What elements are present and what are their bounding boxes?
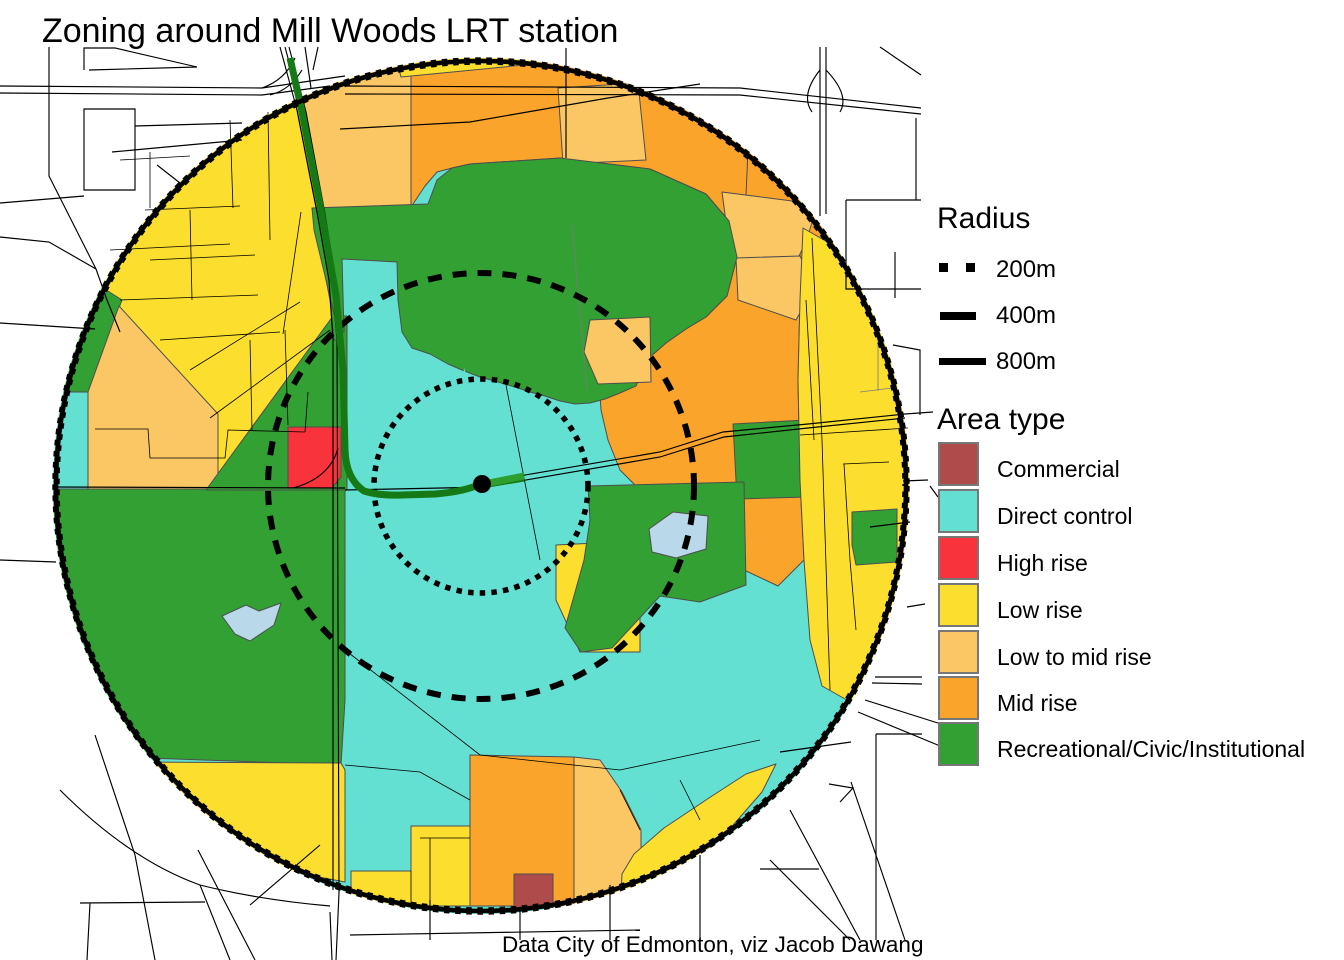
svg-text:Area type: Area type [937,403,1065,436]
svg-text:Low rise: Low rise [997,597,1083,623]
svg-text:Low to mid rise: Low to mid rise [997,644,1152,670]
svg-text:200m: 200m [996,256,1056,283]
svg-text:Mid rise: Mid rise [997,690,1078,716]
svg-text:High rise: High rise [997,550,1088,576]
svg-text:800m: 800m [996,348,1056,375]
svg-text:400m: 400m [996,302,1056,329]
svg-text:Commercial: Commercial [997,456,1120,482]
svg-text:Radius: Radius [937,202,1030,235]
svg-text:Direct control: Direct control [997,503,1132,529]
svg-text:Data City of Edmonton, viz Jac: Data City of Edmonton, viz Jacob Dawang [502,932,923,957]
svg-text:Zoning around Mill Woods LRT s: Zoning around Mill Woods LRT station [42,12,618,50]
svg-text:Recreational/Civic/Institution: Recreational/Civic/Institutional [997,736,1305,762]
